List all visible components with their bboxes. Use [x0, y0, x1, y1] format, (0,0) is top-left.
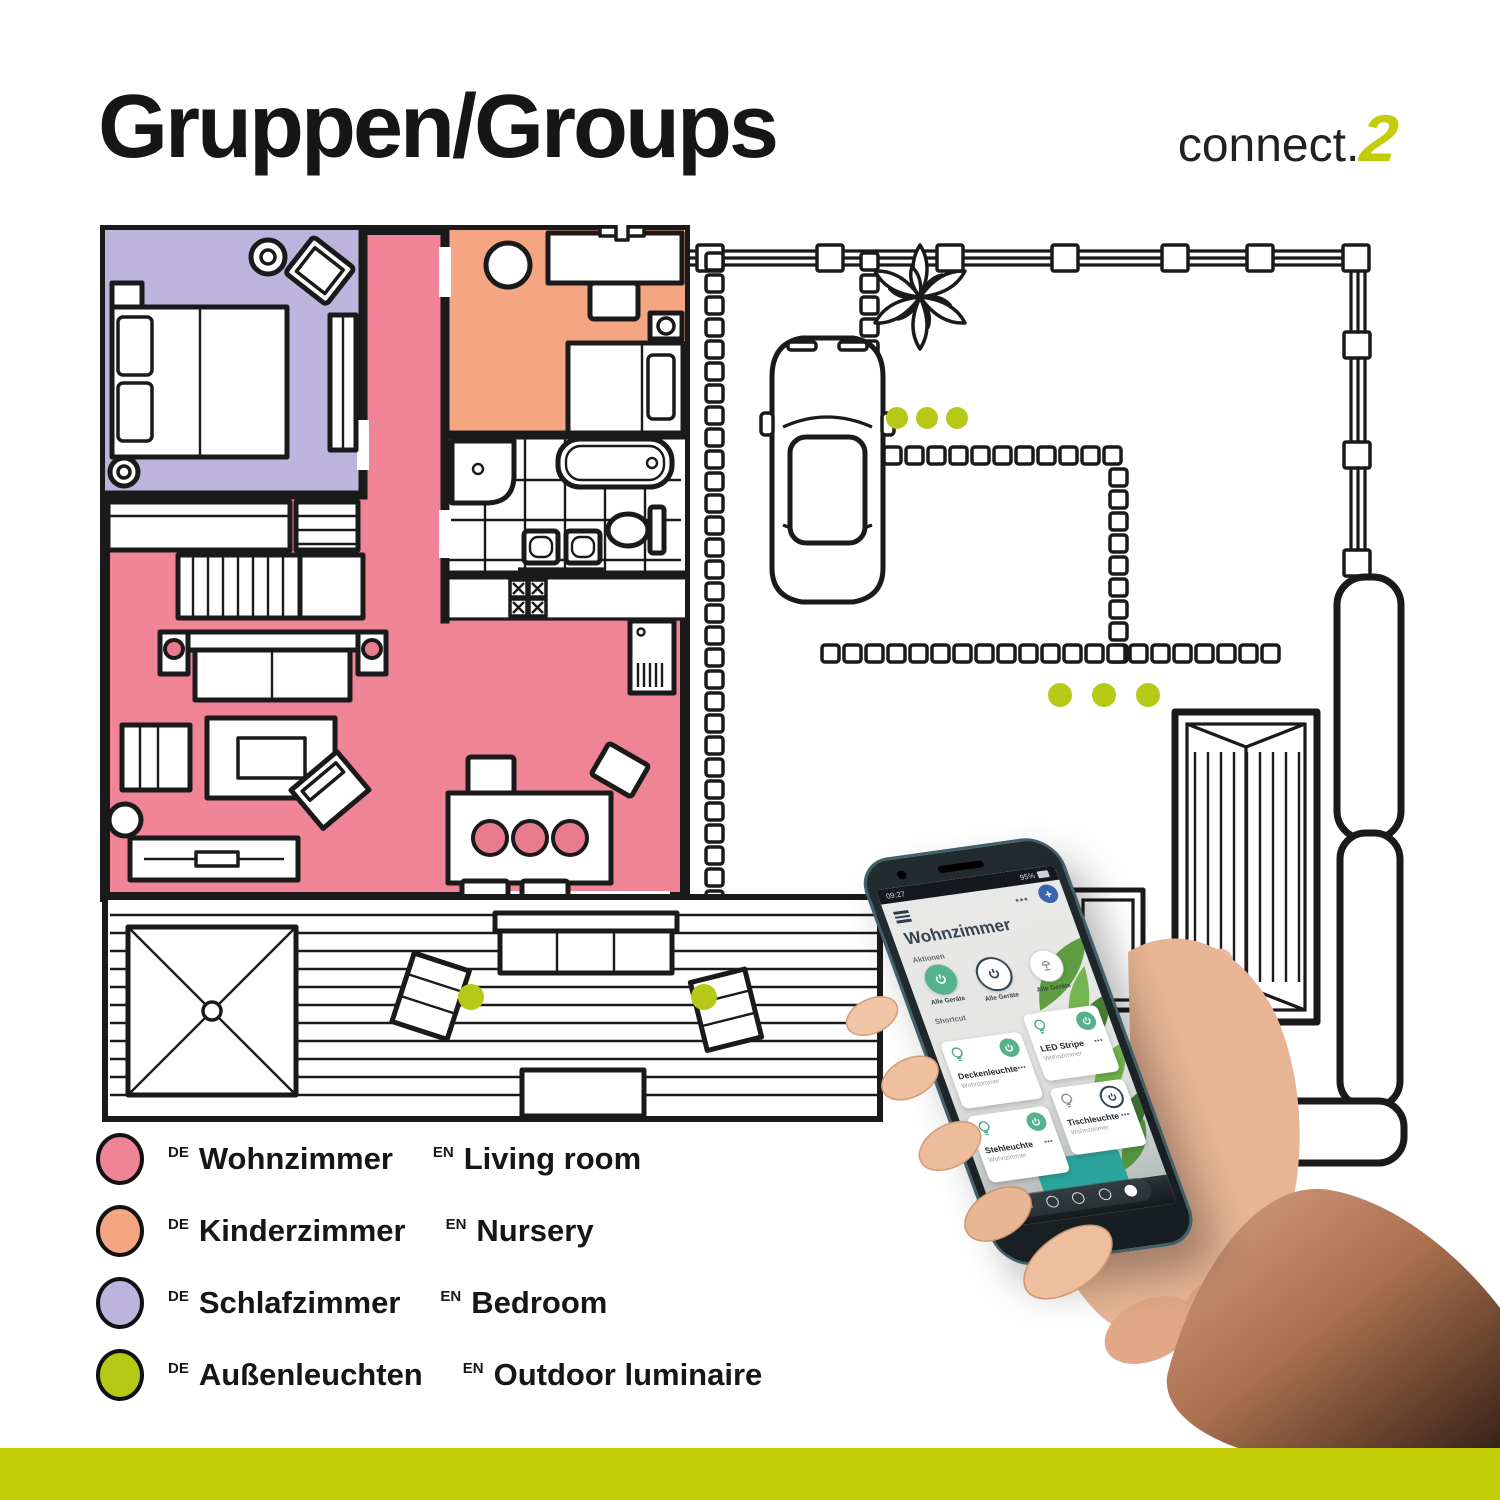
- home-icon[interactable]: ⌂: [1024, 1199, 1034, 1210]
- garden-gate: [1175, 712, 1317, 1022]
- de-tag: DE: [168, 1144, 189, 1161]
- brand-color-bar: [0, 1448, 1500, 1500]
- en-tag: EN: [433, 1144, 454, 1161]
- power-button[interactable]: [997, 1037, 1022, 1058]
- house: [105, 225, 685, 909]
- legend-de-label: Wohnzimmer: [199, 1141, 393, 1177]
- legend-en-label: Living room: [464, 1141, 641, 1177]
- outdoor-sofa: [495, 913, 677, 973]
- tile-more-icon[interactable]: •••: [1043, 1138, 1054, 1146]
- en-tag: EN: [440, 1288, 461, 1305]
- de-tag: DE: [168, 1360, 189, 1377]
- en-tag: EN: [446, 1216, 467, 1233]
- outdoor-table: [522, 1070, 644, 1116]
- legend: DE Wohnzimmer EN Living room DE Kinderzi…: [96, 1136, 762, 1424]
- legend-row-bedroom: DE Schlafzimmer EN Bedroom: [96, 1280, 762, 1326]
- power-button[interactable]: [1024, 1111, 1049, 1132]
- nav-dot-active[interactable]: [1123, 1184, 1139, 1197]
- bulb-icon: [974, 1119, 997, 1143]
- logo-text: connect.: [1178, 118, 1359, 173]
- bulb-icon: [947, 1045, 970, 1069]
- brand-logo: connect. 2: [1178, 100, 1398, 176]
- legend-dot-bedroom: [96, 1277, 144, 1329]
- menu-icon[interactable]: [892, 908, 912, 925]
- nav-dot[interactable]: [1045, 1195, 1061, 1208]
- kitchen: [445, 575, 685, 619]
- all-devices-lamp-button[interactable]: [1024, 948, 1068, 984]
- legend-de-label: Kinderzimmer: [199, 1213, 406, 1249]
- legend-dot-living: [96, 1133, 144, 1185]
- legend-en-label: Bedroom: [471, 1285, 607, 1321]
- all-devices-on-button[interactable]: [920, 963, 962, 997]
- legend-en-label: Outdoor luminaire: [494, 1357, 763, 1393]
- outdoor-light-dot: [691, 984, 717, 1010]
- power-button[interactable]: [1073, 1010, 1098, 1031]
- tile-led-stripe[interactable]: LED Stripe••• Wohnzimmer: [1022, 1005, 1121, 1082]
- legend-row-outdoor: DE Außenleuchten EN Outdoor luminaire: [96, 1352, 762, 1398]
- nav-dot[interactable]: [1071, 1191, 1087, 1204]
- bulb-icon: [1030, 1017, 1053, 1041]
- legend-en-label: Nursery: [476, 1213, 593, 1249]
- device-tiles: Deckenleuchte••• Wohnzimmer LED Stripe••…: [927, 1005, 1161, 1184]
- de-tag: DE: [168, 1288, 189, 1305]
- battery-percent: 95%: [1018, 871, 1036, 882]
- tile-deckenleuchte[interactable]: Deckenleuchte••• Wohnzimmer: [940, 1032, 1044, 1110]
- de-tag: DE: [168, 1216, 189, 1233]
- tile-more-icon[interactable]: •••: [1120, 1111, 1131, 1119]
- battery-icon: [1037, 870, 1050, 878]
- parasol: [128, 927, 296, 1095]
- nav-dot[interactable]: [1097, 1188, 1113, 1201]
- tile-stehleuchte[interactable]: Stehleuchte••• Wohnzimmer: [967, 1106, 1071, 1184]
- phone-camera: [896, 870, 908, 880]
- legend-dot-outdoor: [96, 1349, 144, 1401]
- legend-de-label: Schlafzimmer: [199, 1285, 401, 1321]
- page-title: Gruppen/Groups: [98, 76, 776, 179]
- logo-accent-z: 2: [1357, 100, 1402, 176]
- legend-dot-nursery: [96, 1205, 144, 1257]
- legend-row-living: DE Wohnzimmer EN Living room: [96, 1136, 762, 1182]
- power-button[interactable]: [1096, 1084, 1127, 1109]
- terrace: [105, 897, 880, 1119]
- all-devices-off-button[interactable]: [970, 955, 1017, 993]
- tile-more-icon[interactable]: •••: [1093, 1037, 1104, 1045]
- status-time: 09:27: [885, 889, 907, 900]
- floor-plan: [100, 225, 1410, 1225]
- outdoor-light-dot: [458, 984, 484, 1010]
- tile-more-icon[interactable]: •••: [1016, 1064, 1027, 1072]
- action-label: Alle Geräte: [930, 995, 966, 1007]
- phone-speaker: [937, 860, 985, 873]
- outdoor-light-dot: [1200, 963, 1234, 997]
- en-tag: EN: [463, 1360, 484, 1377]
- legend-row-nursery: DE Kinderzimmer EN Nursery: [96, 1208, 762, 1254]
- more-icon[interactable]: •••: [1014, 894, 1031, 906]
- legend-de-label: Außenleuchten: [199, 1357, 423, 1393]
- bulb-icon: [1057, 1091, 1080, 1115]
- car: [761, 338, 894, 602]
- tile-tischleuchte[interactable]: Tischleuchte••• Wohnzimmer: [1049, 1079, 1148, 1156]
